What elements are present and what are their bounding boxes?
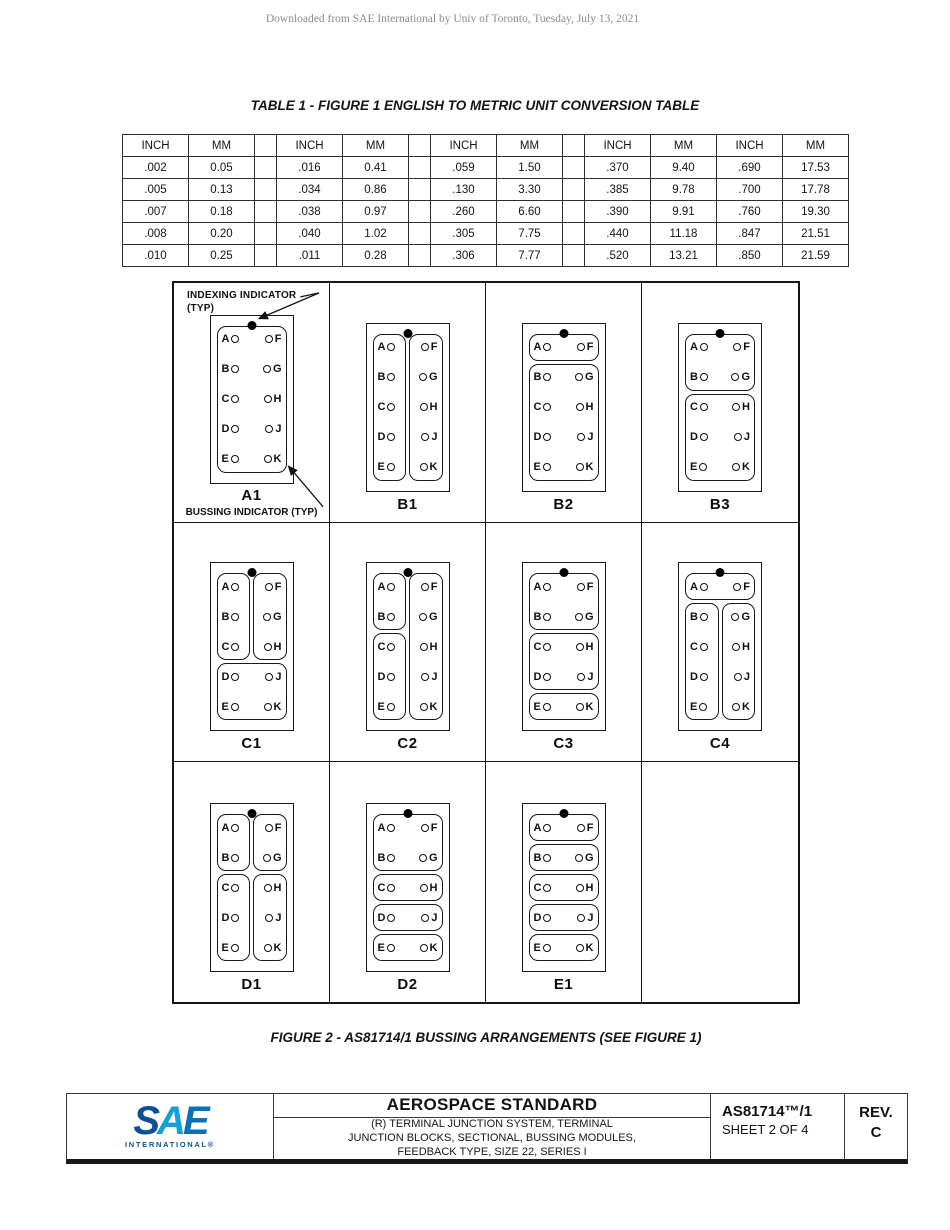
contact-e: E <box>217 693 251 720</box>
contact-letter: B <box>222 363 230 375</box>
value-cell: .016 <box>277 157 343 179</box>
contact-h: H <box>409 874 443 901</box>
contact-circle-icon <box>543 854 551 862</box>
contact-grid: AFBGCHDJEK <box>529 814 599 961</box>
revision-label: REV. <box>845 1103 907 1123</box>
contact-circle-icon <box>731 613 739 621</box>
value-cell: 17.78 <box>783 179 849 201</box>
contact-c: C <box>529 633 563 660</box>
indexing-indicator-label-line2: (TYP) <box>187 302 296 315</box>
contact-circle-icon <box>731 373 739 381</box>
contact-circle-icon <box>387 703 395 711</box>
contact-circle-icon <box>543 613 551 621</box>
contact-j: J <box>409 424 443 451</box>
value-cell: 19.30 <box>783 201 849 223</box>
spacer-header-cell <box>563 135 585 157</box>
contact-c: C <box>685 394 719 421</box>
contact-letter: G <box>429 852 438 864</box>
contact-circle-icon <box>577 433 585 441</box>
contact-letter: C <box>222 393 230 405</box>
contact-letter: B <box>690 611 698 623</box>
contact-a: A <box>529 814 563 841</box>
contact-a: A <box>685 573 719 600</box>
value-cell: .700 <box>717 179 783 201</box>
contact-circle-icon <box>265 425 273 433</box>
contact-b: B <box>685 603 719 630</box>
conversion-table-body: .0020.05.0160.41.0591.50.3709.40.69017.5… <box>123 157 849 267</box>
value-cell: 17.53 <box>783 157 849 179</box>
contact-letter: D <box>690 431 698 443</box>
sae-logo-text: SAE <box>133 1104 206 1138</box>
contact-letter: G <box>741 371 750 383</box>
contact-circle-icon <box>387 373 395 381</box>
contact-circle-icon <box>231 824 239 832</box>
contact-b: B <box>529 603 563 630</box>
contact-circle-icon <box>264 944 272 952</box>
contact-g: G <box>565 603 599 630</box>
header-cell: MM <box>783 135 849 157</box>
contact-letter: A <box>222 581 230 593</box>
spacer-header-cell <box>255 135 277 157</box>
contact-letter: E <box>378 942 385 954</box>
module-c3: AFBGCHDJEK <box>522 562 606 731</box>
contact-j: J <box>409 904 443 931</box>
contact-e: E <box>373 693 407 720</box>
spacer-cell <box>255 223 277 245</box>
contact-letter: J <box>275 671 281 683</box>
contact-j: J <box>565 904 599 931</box>
contact-circle-icon <box>543 373 551 381</box>
contact-circle-icon <box>265 914 273 922</box>
contact-g: G <box>409 603 443 630</box>
value-cell: .038 <box>277 201 343 223</box>
contact-circle-icon <box>387 343 395 351</box>
contact-circle-icon <box>732 463 740 471</box>
contact-circle-icon <box>231 944 239 952</box>
contact-circle-icon <box>421 583 429 591</box>
contact-b: B <box>373 603 407 630</box>
contact-letter: C <box>378 401 386 413</box>
contact-h: H <box>565 633 599 660</box>
value-cell: .520 <box>585 245 651 267</box>
contact-letter: E <box>690 701 697 713</box>
contact-letter: B <box>378 371 386 383</box>
contact-letter: J <box>587 671 593 683</box>
contact-letter: D <box>378 431 386 443</box>
spacer-cell <box>409 245 431 267</box>
contact-e: E <box>373 934 407 961</box>
contact-d: D <box>529 904 563 931</box>
aerospace-standard-title: AEROSPACE STANDARD <box>274 1094 710 1118</box>
contact-k: K <box>565 934 599 961</box>
contact-k: K <box>409 934 443 961</box>
spacer-cell <box>255 245 277 267</box>
module-label-b2: B2 <box>553 496 573 513</box>
value-cell: 9.78 <box>651 179 717 201</box>
contact-circle-icon <box>543 914 551 922</box>
contact-letter: F <box>587 581 594 593</box>
contact-letter: G <box>429 371 438 383</box>
contact-f: F <box>565 334 599 361</box>
contact-letter: H <box>586 882 594 894</box>
contact-letter: A <box>534 822 542 834</box>
contact-letter: A <box>378 822 386 834</box>
contact-circle-icon <box>734 433 742 441</box>
contact-letter: B <box>378 611 386 623</box>
contact-j: J <box>565 663 599 690</box>
contact-circle-icon <box>577 583 585 591</box>
contact-letter: D <box>378 912 386 924</box>
contact-c: C <box>685 633 719 660</box>
contact-g: G <box>253 603 287 630</box>
contact-d: D <box>373 663 407 690</box>
value-cell: .007 <box>123 201 189 223</box>
contact-d: D <box>217 904 251 931</box>
contact-c: C <box>529 874 563 901</box>
contact-circle-icon <box>265 673 273 681</box>
contact-grid: AFBGCHDJEK <box>685 573 755 720</box>
contact-circle-icon <box>732 643 740 651</box>
revision-cell: REV. C <box>845 1094 907 1159</box>
contact-e: E <box>529 934 563 961</box>
value-cell: .008 <box>123 223 189 245</box>
value-cell: .010 <box>123 245 189 267</box>
value-cell: 0.18 <box>189 201 255 223</box>
value-cell: .847 <box>717 223 783 245</box>
contact-letter: F <box>743 581 750 593</box>
contact-circle-icon <box>265 824 273 832</box>
contact-letter: D <box>222 671 230 683</box>
sae-logo-subtext: INTERNATIONAL® <box>125 1140 215 1149</box>
indexing-indicator-dot <box>716 329 725 338</box>
figure2-grid: INDEXING INDICATOR (TYP) AFBGCHDJEKA1 BU… <box>172 281 800 1004</box>
contact-letter: E <box>222 942 229 954</box>
header-cell: MM <box>189 135 255 157</box>
module-label-c4: C4 <box>710 735 730 752</box>
header-cell: INCH <box>585 135 651 157</box>
value-cell: 21.59 <box>783 245 849 267</box>
contact-circle-icon <box>576 884 584 892</box>
contact-f: F <box>409 334 443 361</box>
contact-letter: D <box>534 912 542 924</box>
contact-letter: E <box>534 942 541 954</box>
subtitle-line-3: FEEDBACK TYPE, SIZE 22, SERIES I <box>274 1146 710 1160</box>
contact-letter: D <box>378 671 386 683</box>
contact-circle-icon <box>387 944 395 952</box>
contact-f: F <box>409 814 443 841</box>
value-cell: 0.86 <box>343 179 409 201</box>
contact-circle-icon <box>575 613 583 621</box>
contact-a: A <box>373 334 407 361</box>
contact-h: H <box>253 633 287 660</box>
header-cell: INCH <box>277 135 343 157</box>
fig-cell-b3: AFBGCHDJEKB3 <box>642 283 798 523</box>
contact-circle-icon <box>419 613 427 621</box>
value-cell: 0.20 <box>189 223 255 245</box>
value-cell: 7.77 <box>497 245 563 267</box>
value-cell: 0.25 <box>189 245 255 267</box>
contact-circle-icon <box>231 673 239 681</box>
contact-letter: C <box>378 882 386 894</box>
value-cell: .005 <box>123 179 189 201</box>
module-e1: AFBGCHDJEK <box>522 803 606 972</box>
value-cell: .760 <box>717 201 783 223</box>
contact-circle-icon <box>543 703 551 711</box>
contact-h: H <box>409 394 443 421</box>
fig-cell-c2: AFBGCHDJEKC2 <box>330 523 486 763</box>
contact-letter: K <box>430 942 438 954</box>
contact-letter: K <box>274 453 282 465</box>
contact-circle-icon <box>733 343 741 351</box>
contact-circle-icon <box>265 335 273 343</box>
module-c1: AFBGCHDJEK <box>210 562 294 731</box>
contact-letter: E <box>378 701 385 713</box>
contact-circle-icon <box>576 944 584 952</box>
contact-d: D <box>217 416 251 443</box>
contact-circle-icon <box>419 854 427 862</box>
contact-circle-icon <box>387 854 395 862</box>
contact-circle-icon <box>231 395 239 403</box>
fig-cell-c4: AFBGCHDJEKC4 <box>642 523 798 763</box>
contact-a: A <box>217 326 251 353</box>
fig-cell-b1: AFBGCHDJEKB1 <box>330 283 486 523</box>
contact-a: A <box>529 334 563 361</box>
fig-cell-empty <box>642 762 798 1002</box>
title-block: SAE INTERNATIONAL® AEROSPACE STANDARD (R… <box>66 1093 908 1164</box>
contact-grid: AFBGCHDJEK <box>373 334 443 481</box>
contact-circle-icon <box>387 463 395 471</box>
contact-letter: B <box>222 852 230 864</box>
indexing-indicator-dot <box>559 329 568 338</box>
contact-letter: C <box>690 641 698 653</box>
contact-letter: A <box>534 581 542 593</box>
header-cell: MM <box>343 135 409 157</box>
contact-circle-icon <box>231 884 239 892</box>
contact-circle-icon <box>700 673 708 681</box>
module-label-b1: B1 <box>397 496 417 513</box>
contact-f: F <box>565 814 599 841</box>
fig-cell-c1: AFBGCHDJEKC1 <box>174 523 330 763</box>
contact-k: K <box>565 693 599 720</box>
value-cell: 0.05 <box>189 157 255 179</box>
module-d2: AFBGCHDJEK <box>366 803 450 972</box>
contact-circle-icon <box>420 703 428 711</box>
contact-circle-icon <box>733 583 741 591</box>
module-label-a1: A1 <box>241 487 261 504</box>
contact-circle-icon <box>387 884 395 892</box>
contact-circle-icon <box>575 373 583 381</box>
contact-circle-icon <box>576 403 584 411</box>
contact-letter: C <box>690 401 698 413</box>
contact-a: A <box>529 573 563 600</box>
contact-letter: B <box>378 852 386 864</box>
contact-letter: F <box>587 822 594 834</box>
table-row: .0080.20.0401.02.3057.75.44011.18.84721.… <box>123 223 849 245</box>
fig-cell-e1: AFBGCHDJEKE1 <box>486 762 642 1002</box>
contact-letter: H <box>742 641 750 653</box>
contact-circle-icon <box>577 673 585 681</box>
spacer-header-cell <box>409 135 431 157</box>
contact-circle-icon <box>263 365 271 373</box>
spacer-cell <box>563 245 585 267</box>
value-cell: .002 <box>123 157 189 179</box>
standard-subtitle: (R) TERMINAL JUNCTION SYSTEM, TERMINAL J… <box>274 1118 710 1159</box>
figure2-caption: FIGURE 2 - AS81714/1 BUSSING ARRANGEMENT… <box>0 1030 950 1045</box>
contact-letter: H <box>274 882 282 894</box>
contact-letter: K <box>742 701 750 713</box>
table-row: .0020.05.0160.41.0591.50.3709.40.69017.5… <box>123 157 849 179</box>
fig-cell-d2: AFBGCHDJEKD2 <box>330 762 486 1002</box>
value-cell: 11.18 <box>651 223 717 245</box>
contact-c: C <box>217 633 251 660</box>
contact-circle-icon <box>577 824 585 832</box>
contact-grid: AFBGCHDJEK <box>529 573 599 720</box>
contact-letter: D <box>690 671 698 683</box>
contact-k: K <box>253 446 287 473</box>
contact-letter: D <box>222 423 230 435</box>
contact-d: D <box>529 424 563 451</box>
contact-letter: F <box>743 341 750 353</box>
contact-letter: E <box>222 701 229 713</box>
contact-k: K <box>565 454 599 481</box>
sheet-number: SHEET 2 OF 4 <box>722 1122 844 1137</box>
contact-c: C <box>373 394 407 421</box>
module-label-c2: C2 <box>397 735 417 752</box>
contact-circle-icon <box>543 463 551 471</box>
contact-circle-icon <box>231 613 239 621</box>
contact-letter: C <box>534 641 542 653</box>
contact-e: E <box>529 454 563 481</box>
contact-letter: J <box>744 671 750 683</box>
contact-circle-icon <box>699 703 707 711</box>
contact-circle-icon <box>543 343 551 351</box>
indexing-indicator-dot <box>403 329 412 338</box>
contact-g: G <box>722 603 756 630</box>
contact-h: H <box>409 633 443 660</box>
contact-letter: F <box>275 333 282 345</box>
contact-b: B <box>217 356 251 383</box>
contact-e: E <box>685 693 719 720</box>
contact-d: D <box>217 663 251 690</box>
contact-h: H <box>565 874 599 901</box>
contact-circle-icon <box>575 854 583 862</box>
contact-a: A <box>373 814 407 841</box>
module-label-e1: E1 <box>554 976 573 993</box>
contact-letter: K <box>430 701 438 713</box>
fig-cell-b2: AFBGCHDJEKB2 <box>486 283 642 523</box>
contact-circle-icon <box>421 673 429 681</box>
module-label-d1: D1 <box>241 976 261 993</box>
conversion-table: INCHMMINCHMMINCHMMINCHMMINCHMM .0020.05.… <box>122 134 849 267</box>
contact-grid: AFBGCHDJEK <box>217 814 287 961</box>
contact-letter: G <box>273 852 282 864</box>
value-cell: .059 <box>431 157 497 179</box>
contact-b: B <box>217 844 251 871</box>
value-cell: 1.02 <box>343 223 409 245</box>
contact-letter: F <box>431 581 438 593</box>
contact-circle-icon <box>263 613 271 621</box>
value-cell: 9.40 <box>651 157 717 179</box>
contact-circle-icon <box>265 583 273 591</box>
contact-e: E <box>217 446 251 473</box>
fig-cell-a1: INDEXING INDICATOR (TYP) AFBGCHDJEKA1 BU… <box>174 283 330 523</box>
fig-cell-c3: AFBGCHDJEKC3 <box>486 523 642 763</box>
contact-circle-icon <box>576 703 584 711</box>
contact-c: C <box>373 633 407 660</box>
contact-letter: K <box>274 942 282 954</box>
contact-letter: B <box>690 371 698 383</box>
contact-g: G <box>253 356 287 383</box>
contact-j: J <box>409 663 443 690</box>
contact-letter: E <box>690 461 697 473</box>
contact-letter: A <box>222 822 230 834</box>
contact-letter: B <box>534 611 542 623</box>
indexing-indicator-dot <box>559 568 568 577</box>
spacer-cell <box>409 223 431 245</box>
sae-logo: SAE INTERNATIONAL® <box>67 1094 273 1159</box>
contact-b: B <box>685 364 719 391</box>
contact-h: H <box>722 633 756 660</box>
contact-circle-icon <box>231 335 239 343</box>
module-b2: AFBGCHDJEK <box>522 323 606 492</box>
conversion-table-head: INCHMMINCHMMINCHMMINCHMMINCHMM <box>123 135 849 157</box>
contact-letter: H <box>430 882 438 894</box>
indexing-indicator-dot <box>403 809 412 818</box>
indexing-indicator-dot <box>247 809 256 818</box>
contact-a: A <box>217 573 251 600</box>
contact-circle-icon <box>543 824 551 832</box>
value-cell: .440 <box>585 223 651 245</box>
contact-b: B <box>373 844 407 871</box>
header-cell: MM <box>651 135 717 157</box>
contact-circle-icon <box>387 613 395 621</box>
contact-letter: E <box>534 701 541 713</box>
contact-circle-icon <box>231 914 239 922</box>
indexing-indicator-dot <box>559 809 568 818</box>
contact-letter: F <box>587 341 594 353</box>
value-cell: .850 <box>717 245 783 267</box>
contact-letter: J <box>587 431 593 443</box>
contact-k: K <box>253 693 287 720</box>
title-block-center: AEROSPACE STANDARD (R) TERMINAL JUNCTION… <box>273 1094 711 1159</box>
contact-e: E <box>685 454 719 481</box>
contact-letter: D <box>534 671 542 683</box>
contact-letter: C <box>222 641 230 653</box>
contact-g: G <box>565 364 599 391</box>
indexing-indicator-dot <box>403 568 412 577</box>
contact-letter: H <box>586 641 594 653</box>
contact-circle-icon <box>231 455 239 463</box>
contact-circle-icon <box>231 854 239 862</box>
contact-h: H <box>565 394 599 421</box>
contact-letter: H <box>430 401 438 413</box>
contact-circle-icon <box>577 343 585 351</box>
value-cell: .040 <box>277 223 343 245</box>
contact-grid: AFBGCHDJEK <box>217 326 287 473</box>
contact-h: H <box>253 874 287 901</box>
contact-circle-icon <box>420 463 428 471</box>
contact-grid: AFBGCHDJEK <box>373 814 443 961</box>
contact-circle-icon <box>419 373 427 381</box>
contact-circle-icon <box>421 914 429 922</box>
contact-circle-icon <box>700 613 708 621</box>
contact-e: E <box>217 934 251 961</box>
contact-d: D <box>685 424 719 451</box>
contact-circle-icon <box>543 433 551 441</box>
contact-circle-icon <box>576 643 584 651</box>
module-label-c1: C1 <box>241 735 261 752</box>
contact-circle-icon <box>264 643 272 651</box>
